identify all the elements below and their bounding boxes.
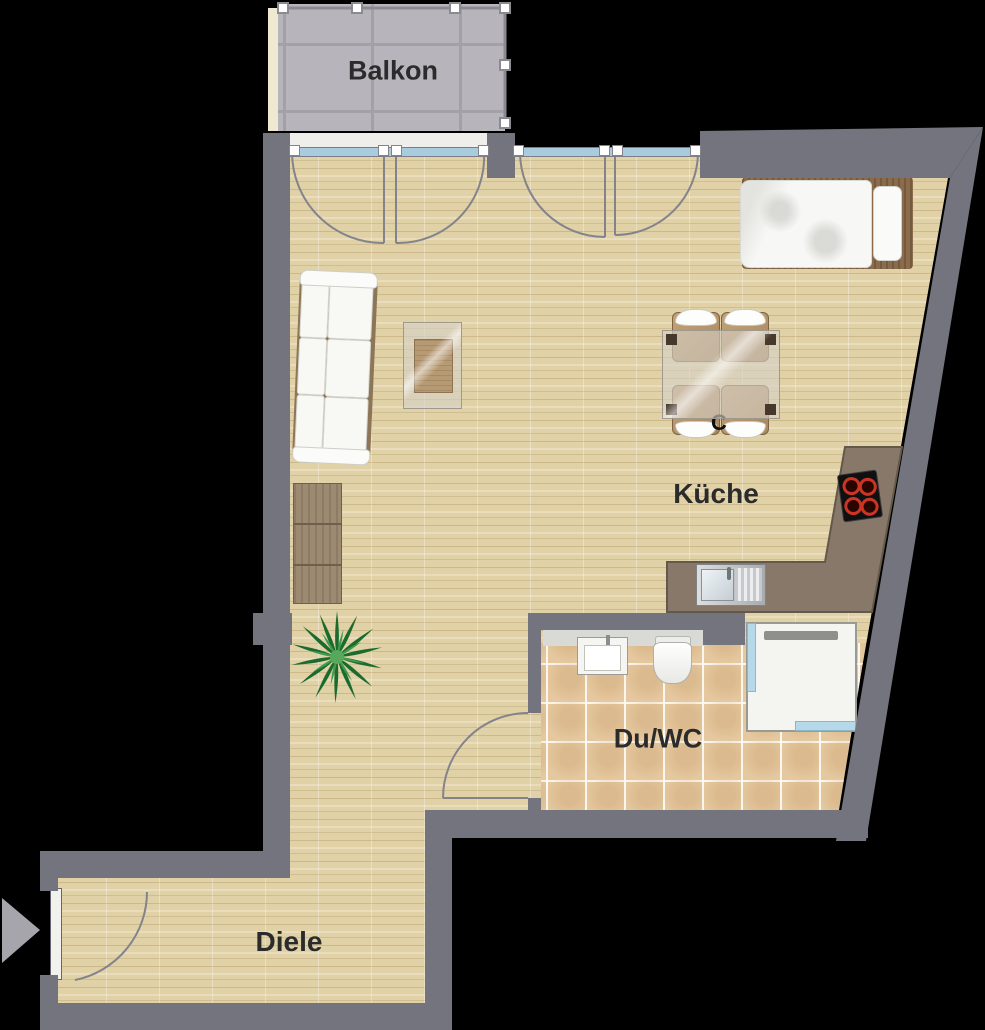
walls — [40, 127, 983, 1030]
room-label-kueche: Küche — [673, 478, 759, 510]
wall-top-right — [700, 127, 983, 178]
door-jamb-marker — [289, 145, 300, 156]
wall-bath-left-lower — [528, 798, 541, 814]
door-hinge-marker — [612, 145, 623, 156]
wall-hall-top — [40, 851, 290, 891]
room-label-duwc: Du/WC — [614, 724, 702, 755]
door-jamb-marker — [690, 145, 701, 156]
door-hinge-marker — [599, 145, 610, 156]
room-label-diele: Diele — [256, 926, 323, 958]
wall-bath-top-right — [703, 616, 745, 645]
door-hinge-marker — [391, 145, 402, 156]
wall-left — [263, 133, 290, 851]
door-hinge-marker — [378, 145, 389, 156]
floorplan-canvas: C — [0, 0, 985, 1030]
door-jamb-marker — [478, 145, 489, 156]
wall-right-slanted — [836, 127, 983, 841]
wall-bath-bottom — [425, 810, 868, 838]
door-jamb-marker — [513, 145, 524, 156]
walls-layer — [0, 0, 985, 1030]
room-label-balkon: Balkon — [348, 56, 438, 87]
wall-left-pier — [253, 613, 292, 645]
wall-pier-center-top — [487, 133, 515, 178]
wall-corridor-right — [425, 810, 452, 1030]
wall-hall-bottom — [40, 1003, 452, 1030]
